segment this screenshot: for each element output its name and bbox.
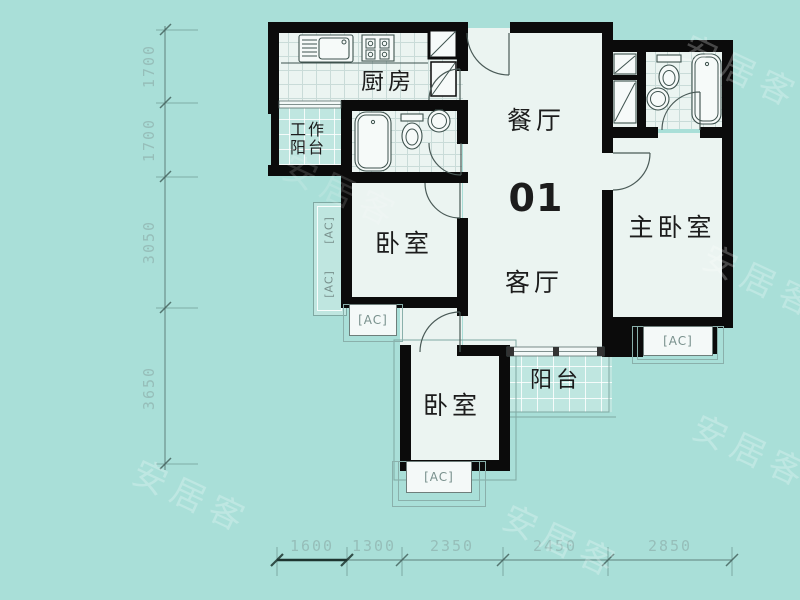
- work-balcony-label-line2: 阳台: [290, 139, 326, 157]
- bedroom-bottom-label: 卧室: [423, 386, 481, 422]
- dim-bottom-4: 2450: [533, 537, 577, 555]
- living-label: 客厅: [505, 263, 563, 299]
- bedroom-left-label: 卧室: [375, 224, 433, 260]
- dim-left-1: 1700: [140, 44, 158, 88]
- dim-left-4: 3650: [140, 366, 158, 410]
- dimension-lines-left: [156, 24, 198, 470]
- ac-label: [AC]: [424, 470, 454, 484]
- dim-bottom-3: 2350: [430, 537, 474, 555]
- dim-bottom-2: 1300: [352, 537, 396, 555]
- ac-box-bedroom-bottom: [AC]: [406, 461, 472, 493]
- ac-box-master-bedroom: [AC]: [643, 326, 713, 356]
- ac-label: [AC]: [358, 313, 388, 327]
- balcony-label: 阳台: [530, 362, 582, 394]
- duct-shaft: [429, 30, 457, 96]
- bathroom2-fixtures: [647, 54, 721, 124]
- kitchen-fixtures: [281, 35, 428, 63]
- kitchen-label: 厨房: [361, 62, 415, 96]
- dim-left-3: 3050: [140, 220, 158, 264]
- work-balcony-label: 工作 阳台: [290, 121, 326, 157]
- dim-bottom-1: 1600: [290, 537, 334, 555]
- ac-box-bedroom-left: [AC]: [349, 304, 397, 336]
- dining-label: 餐厅: [507, 101, 565, 137]
- work-balcony-label-line1: 工作: [290, 121, 326, 139]
- unit-number: 01: [509, 176, 564, 220]
- master-bedroom-label: 主卧室: [628, 208, 715, 244]
- ac-label-platform-lower: [AC]: [323, 270, 336, 298]
- ac-label-platform-upper: [AC]: [323, 216, 336, 244]
- closet: [614, 54, 636, 123]
- ac-label: [AC]: [663, 334, 693, 348]
- floorplan-canvas: [AC] [AC] [AC] [AC] [AC] 厨房 工作 阳台 餐厅 01 …: [0, 0, 800, 600]
- dim-left-2: 1700: [140, 118, 158, 162]
- dim-bottom-5: 2850: [648, 537, 692, 555]
